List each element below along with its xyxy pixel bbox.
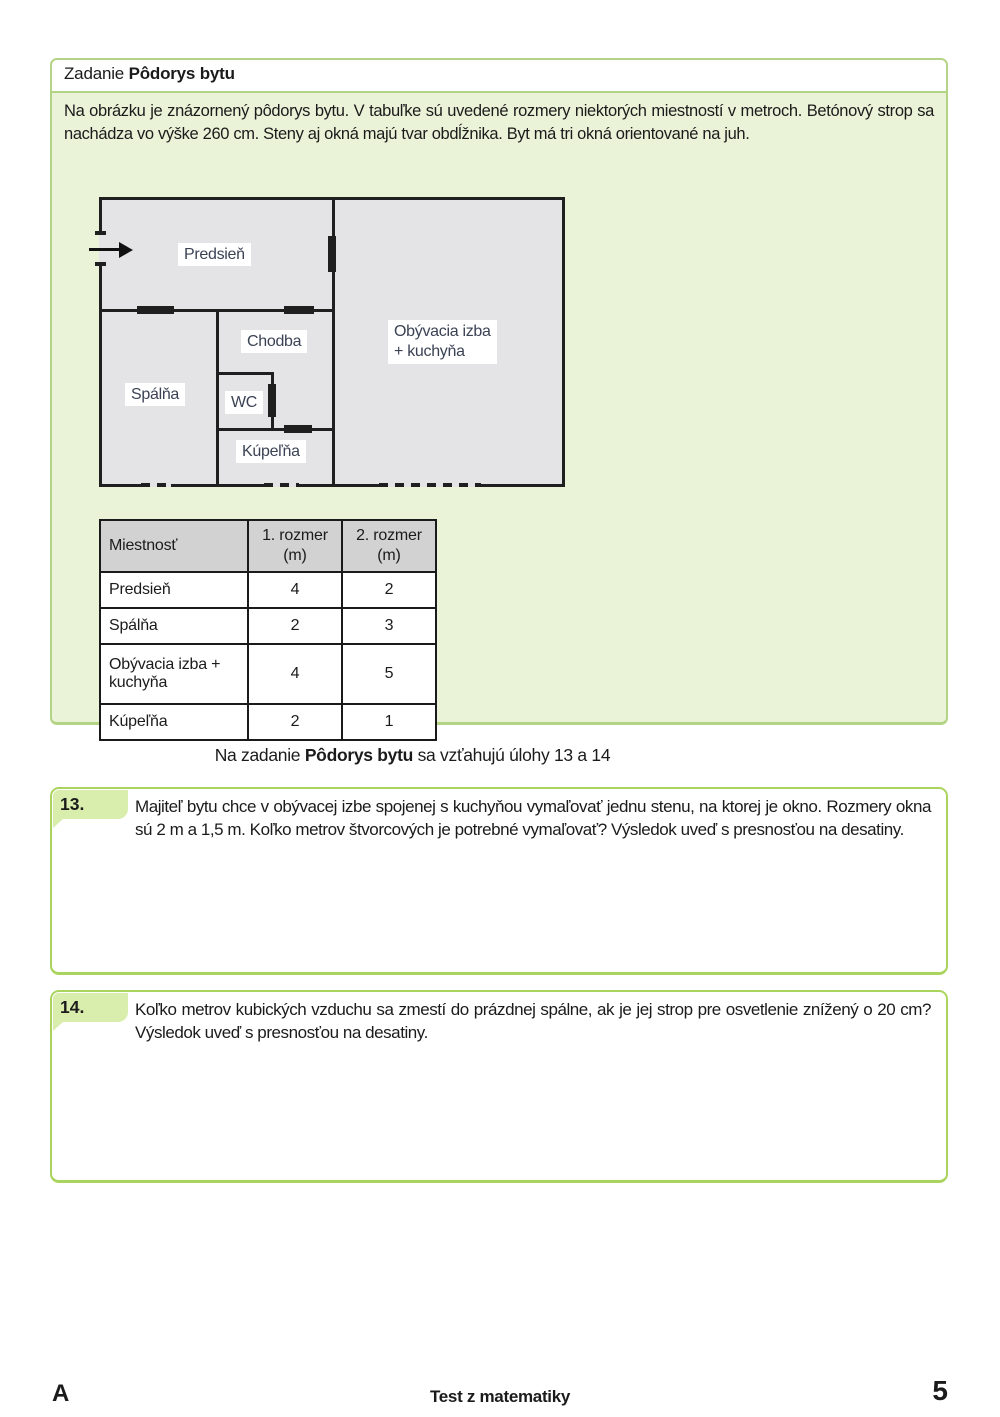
room-label-obyvacia: Obývacia izba+ kuchyňa [388, 320, 497, 364]
table-header-rozmer2: 2. rozmer (m) [342, 520, 436, 572]
window-dashes [379, 483, 481, 487]
wall [216, 372, 274, 375]
entrance-tick [95, 231, 106, 235]
relation-prefix: Na zadanie [215, 745, 305, 765]
entrance-arrow-line [89, 248, 121, 251]
task-intro-text: Na obrázku je znázornený pôdorys bytu. V… [64, 100, 934, 146]
question-text: Majiteľ bytu chce v obývacej izbe spojen… [135, 795, 931, 841]
wall [216, 309, 219, 487]
table-cell: Obývacia izba + kuchyňa [100, 644, 248, 704]
door-mark [284, 425, 312, 433]
room-label-predsien: Predsieň [178, 243, 251, 266]
table-cell: 1 [342, 704, 436, 740]
question-box-14: 14. Koľko metrov kubických vzduchu sa zm… [50, 990, 948, 1183]
relation-line: Na zadanie Pôdorys bytu sa vzťahujú úloh… [50, 745, 775, 766]
table-row: Obývacia izba + kuchyňa 4 5 [100, 644, 436, 704]
table-cell: 3 [342, 608, 436, 644]
table-cell: Predsieň [100, 572, 248, 608]
table-cell: 5 [342, 644, 436, 704]
window-dashes [264, 483, 299, 487]
table-cell: 2 [342, 572, 436, 608]
table-row: Spálňa 2 3 [100, 608, 436, 644]
wall [99, 265, 102, 487]
question-number: 13. [53, 790, 128, 815]
room-label-obyvacia-line2: + kuchyňa [394, 343, 465, 360]
wall [481, 484, 565, 487]
table-cell: 2 [248, 704, 342, 740]
table-cell: Kúpeľňa [100, 704, 248, 740]
task-title: Zadanie Pôdorys bytu [52, 60, 946, 93]
door-mark [137, 306, 174, 314]
task-title-name: Pôdorys bytu [129, 64, 235, 83]
room-label-obyvacia-line1: Obývacia izba [394, 323, 491, 340]
dimensions-table: Miestnosť 1. rozmer (m) 2. rozmer (m) Pr… [99, 519, 437, 741]
room-label-spalna: Spálňa [125, 383, 185, 406]
question-number-tab: 13. [53, 790, 128, 819]
floor-plan: Predsieň Chodba Obývacia izba+ kuchyňa S… [99, 197, 565, 487]
door-mark [284, 306, 314, 314]
room-label-chodba: Chodba [241, 330, 307, 353]
table-cell: 2 [248, 608, 342, 644]
room-label-wc: WC [225, 391, 263, 414]
wall [216, 428, 335, 431]
table-cell: 4 [248, 572, 342, 608]
wall [562, 197, 565, 487]
table-header-miestnost: Miestnosť [100, 520, 248, 572]
wall [299, 484, 379, 487]
door-mark [268, 384, 276, 417]
relation-task-name: Pôdorys bytu [305, 745, 413, 765]
question-box-13: 13. Majiteľ bytu chce v obývacej izbe sp… [50, 787, 948, 975]
entrance-tick [95, 262, 106, 266]
task-title-prefix: Zadanie [64, 64, 129, 83]
wall [171, 484, 264, 487]
table-row: Kúpeľňa 2 1 [100, 704, 436, 740]
question-number-tab: 14. [53, 993, 128, 1022]
question-text: Koľko metrov kubických vzduchu sa zmestí… [135, 998, 931, 1044]
question-number: 14. [53, 993, 128, 1018]
room-label-kupelna: Kúpeľňa [236, 440, 306, 463]
table-header-row: Miestnosť 1. rozmer (m) 2. rozmer (m) [100, 520, 436, 572]
table-header-rozmer1: 1. rozmer (m) [248, 520, 342, 572]
task-box: Zadanie Pôdorys bytu Na obrázku je znázo… [50, 58, 948, 725]
test-page: Zadanie Pôdorys bytu Na obrázku je znázo… [0, 0, 1000, 1417]
table-cell: Spálňa [100, 608, 248, 644]
door-mark [328, 236, 336, 272]
window-dashes [141, 483, 171, 487]
relation-suffix: sa vzťahujú úlohy 13 a 14 [413, 745, 610, 765]
footer-page-number: 5 [932, 1375, 948, 1407]
table-row: Predsieň 4 2 [100, 572, 436, 608]
footer-title: Test z matematiky [0, 1387, 1000, 1407]
entrance-arrow-head [119, 242, 133, 258]
wall [99, 484, 141, 487]
wall [99, 197, 102, 235]
table-cell: 4 [248, 644, 342, 704]
